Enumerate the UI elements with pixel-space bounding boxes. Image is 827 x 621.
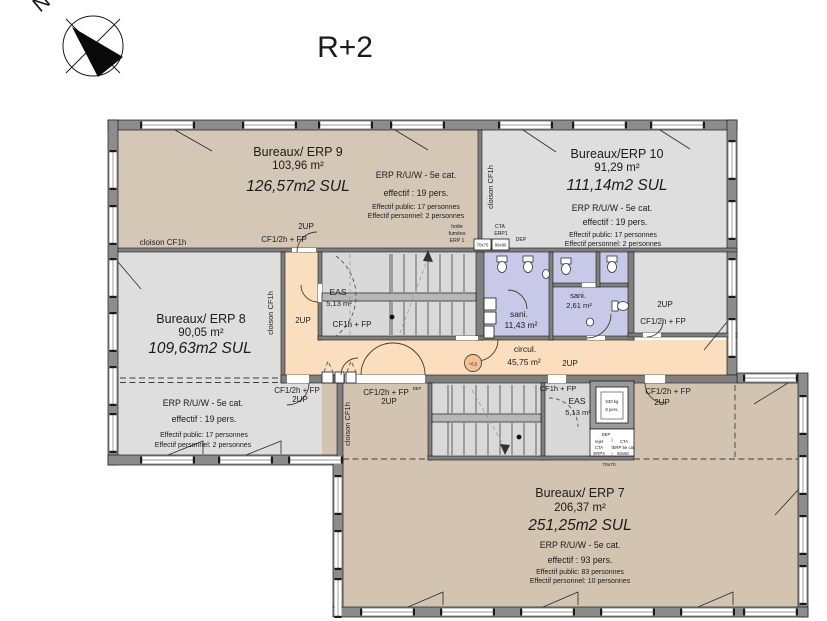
rejet-cta-label: rejet xyxy=(595,439,604,444)
toilet-icon xyxy=(607,256,617,273)
svg-text:ERP1: ERP1 xyxy=(494,231,508,237)
eas-upper-area: 5,13 m² xyxy=(326,299,352,308)
stair-newel-lower xyxy=(517,435,522,440)
eas-lower-area: 5,13 m² xyxy=(565,408,591,417)
exit-2up-corridor: 2UP xyxy=(562,359,578,368)
elevator-load-label: 630 kg xyxy=(606,399,620,404)
erp9-category: ERP R/U/W - 5e cat. xyxy=(376,170,457,180)
floor-plan-page: N R+2 xyxy=(0,0,827,621)
circulation-name: circul. xyxy=(514,344,536,354)
door-cf12-erp7-west: CF1/2h + FP xyxy=(363,388,409,397)
duct-70x75-label: 70x75 xyxy=(477,243,489,248)
exit-2up-erp9: 2UP xyxy=(298,222,314,231)
sani-main-name: sani. xyxy=(510,309,528,319)
erp7-category: ERP R/U/W - 5e cat. xyxy=(540,540,621,550)
exit-2up-vestibule: 2UP xyxy=(657,300,673,309)
compass-needle xyxy=(72,27,123,77)
erp9-area: 103,96 m² xyxy=(272,160,324,172)
erp8-public: Effectif public: 17 personnes xyxy=(160,432,248,439)
toilet-icon xyxy=(612,301,629,311)
svg-text:ERP 1: ERP 1 xyxy=(450,238,465,244)
door-cf12-vestibule: CF1/2h + FP xyxy=(640,317,686,326)
duct-60x60-label: 60x60 xyxy=(617,451,629,456)
erp10-category: ERP R/U/W - 5e cat. xyxy=(572,203,653,213)
dep-label-erp7: DEP xyxy=(413,386,422,391)
door-cf12-erp8: CF1/2h + FP xyxy=(274,386,320,395)
toilet-icon xyxy=(497,256,507,273)
door-cf12-erp9: CF1/2h + FP xyxy=(261,235,307,244)
level-value: +6,5 xyxy=(469,362,478,367)
erp8-area: 90,05 m² xyxy=(178,327,224,339)
exit-2up-erp8: 2UP xyxy=(292,395,308,404)
circulation-area: 45,75 m² xyxy=(507,357,541,367)
exit-2up-erp7-west: 2UP xyxy=(381,397,397,406)
erp7-occupancy: effectif : 93 pers. xyxy=(548,555,613,565)
floor-title: R+2 xyxy=(317,31,373,64)
door-cf12-erp7-east: CF1/2h + FP xyxy=(645,387,691,396)
sani-small-name: sani. xyxy=(570,291,586,300)
erp8-staff: Effectif personnel: 2 personnes xyxy=(155,442,252,449)
toilet-icon xyxy=(561,258,571,275)
cloison-label-erp10: cloison CF1h xyxy=(486,165,495,209)
erp10-area: 91,29 m² xyxy=(594,162,640,174)
sani-main-area: 11,43 m² xyxy=(505,320,538,330)
erp9-name: Bureaux/ ERP 9 xyxy=(253,145,342,159)
erp10-occupancy: effectif : 19 pers. xyxy=(583,217,648,227)
erp9-staff: Effectif personnel: 2 personnes xyxy=(368,213,465,220)
toilet-icon xyxy=(523,256,533,273)
elevator-shaft: 630 kg 8 pers. xyxy=(590,381,634,429)
erp10-staff: Effectif personnel: 2 personnes xyxy=(565,241,662,248)
svg-text:ERP 5e cat.: ERP 5e cat. xyxy=(613,445,636,450)
sink-icon xyxy=(543,270,550,279)
duct-80x80-label: 80x80 xyxy=(495,243,507,248)
erp7-staff: Effectif personnel: 10 personnes xyxy=(530,578,631,585)
erp8-sul: 109,63m2 SUL xyxy=(148,340,251,357)
floor-plan-drawing: N R+2 xyxy=(0,0,827,621)
cta-erp1-label: CTA xyxy=(495,224,506,230)
dep-label-upper: DEP xyxy=(516,237,527,243)
door-cf1-eas-upper: CF1h + FP xyxy=(333,320,372,329)
stair-newel-upper xyxy=(390,315,395,320)
erp7-sul: 251,25m2 SUL xyxy=(527,517,631,534)
erp8-occupancy: effectif : 19 pers. xyxy=(172,414,237,424)
eas-lower-name: EAS xyxy=(568,396,585,406)
room-fills xyxy=(118,130,798,607)
erp10-sul: 111,14m2 SUL xyxy=(566,177,667,194)
erp9-occupancy: effectif : 19 pers. xyxy=(384,188,449,198)
svg-text:ERP3: ERP3 xyxy=(593,451,605,456)
erp8-name: Bureaux/ ERP 8 xyxy=(156,312,245,326)
erp9-public: Effectif public: 17 personnes xyxy=(372,204,460,211)
cloison-label-erp8: cloison CF1h xyxy=(266,291,275,335)
hotte-fumees-label: hotte xyxy=(451,224,463,230)
sink-icon xyxy=(587,318,594,326)
erp8-category: ERP R/U/W - 5e cat. xyxy=(163,398,244,408)
elevator-capacity-label: 8 pers. xyxy=(605,407,618,412)
sani-small-area: 2,61 m² xyxy=(566,301,592,310)
erp10-public: Effectif public: 17 personnes xyxy=(569,232,657,239)
cloison-label-erp7: cloison CF1h xyxy=(343,402,352,446)
erp7-name: Bureaux/ ERP 7 xyxy=(535,486,624,500)
north-compass: N xyxy=(28,0,123,77)
eas-lower-room xyxy=(545,383,590,458)
duct-70x70-label: 70x70 xyxy=(602,462,615,468)
erp10-name: Bureaux/ERP 10 xyxy=(571,147,664,161)
erp7-public: Effectif public: 83 personnes xyxy=(536,569,624,576)
cta-erp-label: CTA xyxy=(620,439,628,444)
dep-label-lower: DEP xyxy=(602,432,611,437)
erp7-area: 206,37 m² xyxy=(554,502,606,514)
exit-2up-erp7-east: 2UP xyxy=(654,398,670,407)
erp9-sul: 126,57m2 SUL xyxy=(246,178,349,195)
door-cf1-eas-lower: CF1h + FP xyxy=(540,384,576,393)
eas-upper-name: EAS xyxy=(329,287,346,297)
svg-text:fumées: fumées xyxy=(448,231,465,237)
cloison-label-erp9: cloison CF1h xyxy=(140,238,187,247)
north-letter: N xyxy=(28,0,54,17)
svg-text:CTA: CTA xyxy=(595,445,603,450)
level-marker: +6,5 xyxy=(465,355,482,372)
exit-2up-corridor-west: 2UP xyxy=(295,316,311,325)
